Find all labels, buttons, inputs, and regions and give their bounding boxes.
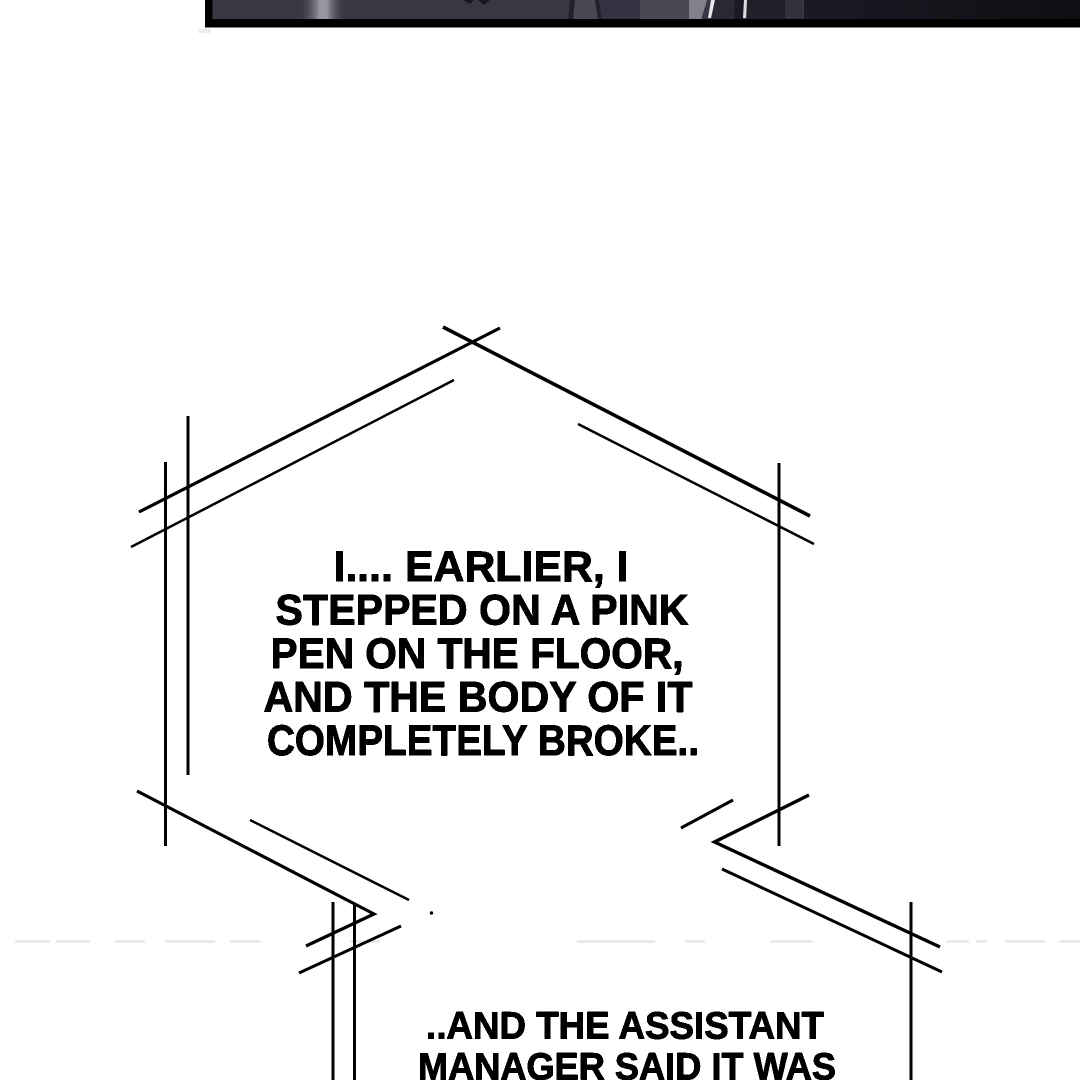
svg-text:COMPLETELY BROKE..: COMPLETELY BROKE.. (267, 717, 699, 765)
svg-text:STEPPED ON A PINK: STEPPED ON A PINK (276, 587, 689, 635)
svg-text:AND THE BODY OF IT: AND THE BODY OF IT (264, 674, 693, 722)
svg-text:..AND THE ASSISTANT: ..AND THE ASSISTANT (426, 1006, 824, 1048)
svg-text:MANAGER SAID IT WAS: MANAGER SAID IT WAS (418, 1047, 836, 1080)
svg-text:PEN ON THE FLOOR,: PEN ON THE FLOOR, (271, 630, 684, 678)
svg-text:I.... EARLIER, I: I.... EARLIER, I (334, 543, 629, 591)
